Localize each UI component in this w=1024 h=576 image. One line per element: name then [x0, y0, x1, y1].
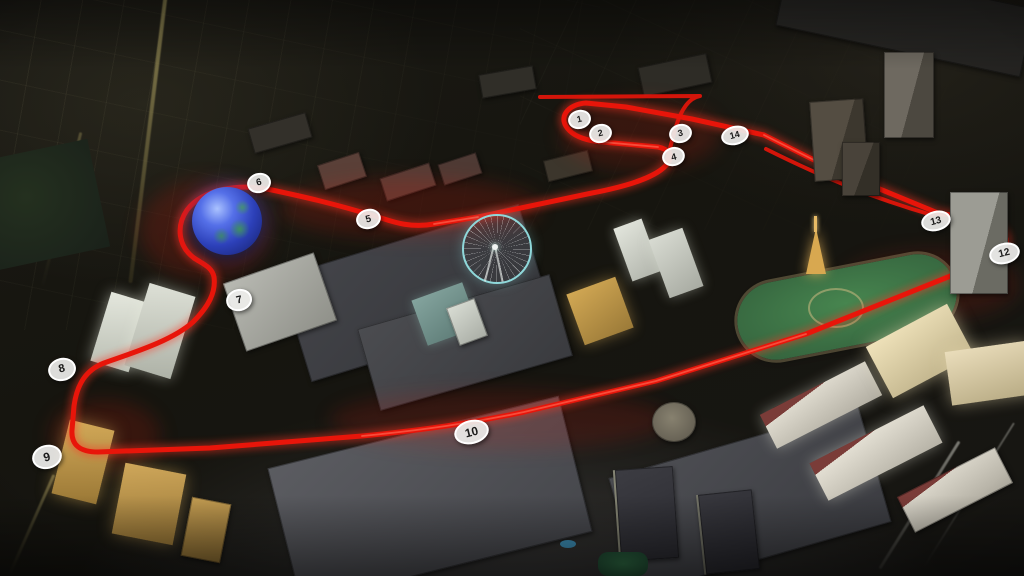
turn-number: 7	[235, 293, 244, 306]
turn-number: 14	[729, 129, 741, 141]
turn-marker-8: 8	[46, 355, 78, 384]
turn-number: 5	[364, 213, 372, 225]
turn-number: 10	[463, 424, 479, 441]
turn-marker-13: 13	[919, 208, 953, 235]
turn-marker-1: 1	[566, 107, 593, 131]
turn-number: 4	[670, 152, 677, 163]
turn-number: 6	[255, 177, 263, 189]
turn-number: 2	[596, 128, 603, 139]
turn-marker-4: 4	[660, 145, 687, 169]
aerial-scene: 12345678910121314	[0, 0, 1024, 576]
turn-marker-6: 6	[245, 171, 273, 196]
turn-marker-3: 3	[667, 121, 694, 145]
turn-number: 13	[929, 214, 942, 227]
turn-markers-layer: 12345678910121314	[0, 0, 1024, 576]
turn-number: 9	[42, 449, 52, 464]
turn-marker-5: 5	[354, 206, 383, 232]
turn-marker-10: 10	[451, 416, 491, 447]
turn-number: 12	[997, 246, 1011, 259]
turn-number: 3	[676, 128, 683, 139]
turn-number: 8	[57, 362, 66, 375]
turn-marker-9: 9	[30, 442, 64, 472]
turn-marker-14: 14	[719, 122, 750, 147]
turn-marker-2: 2	[587, 121, 614, 145]
turn-number: 1	[575, 114, 582, 125]
turn-marker-7: 7	[224, 286, 255, 313]
turn-marker-12: 12	[987, 239, 1022, 267]
